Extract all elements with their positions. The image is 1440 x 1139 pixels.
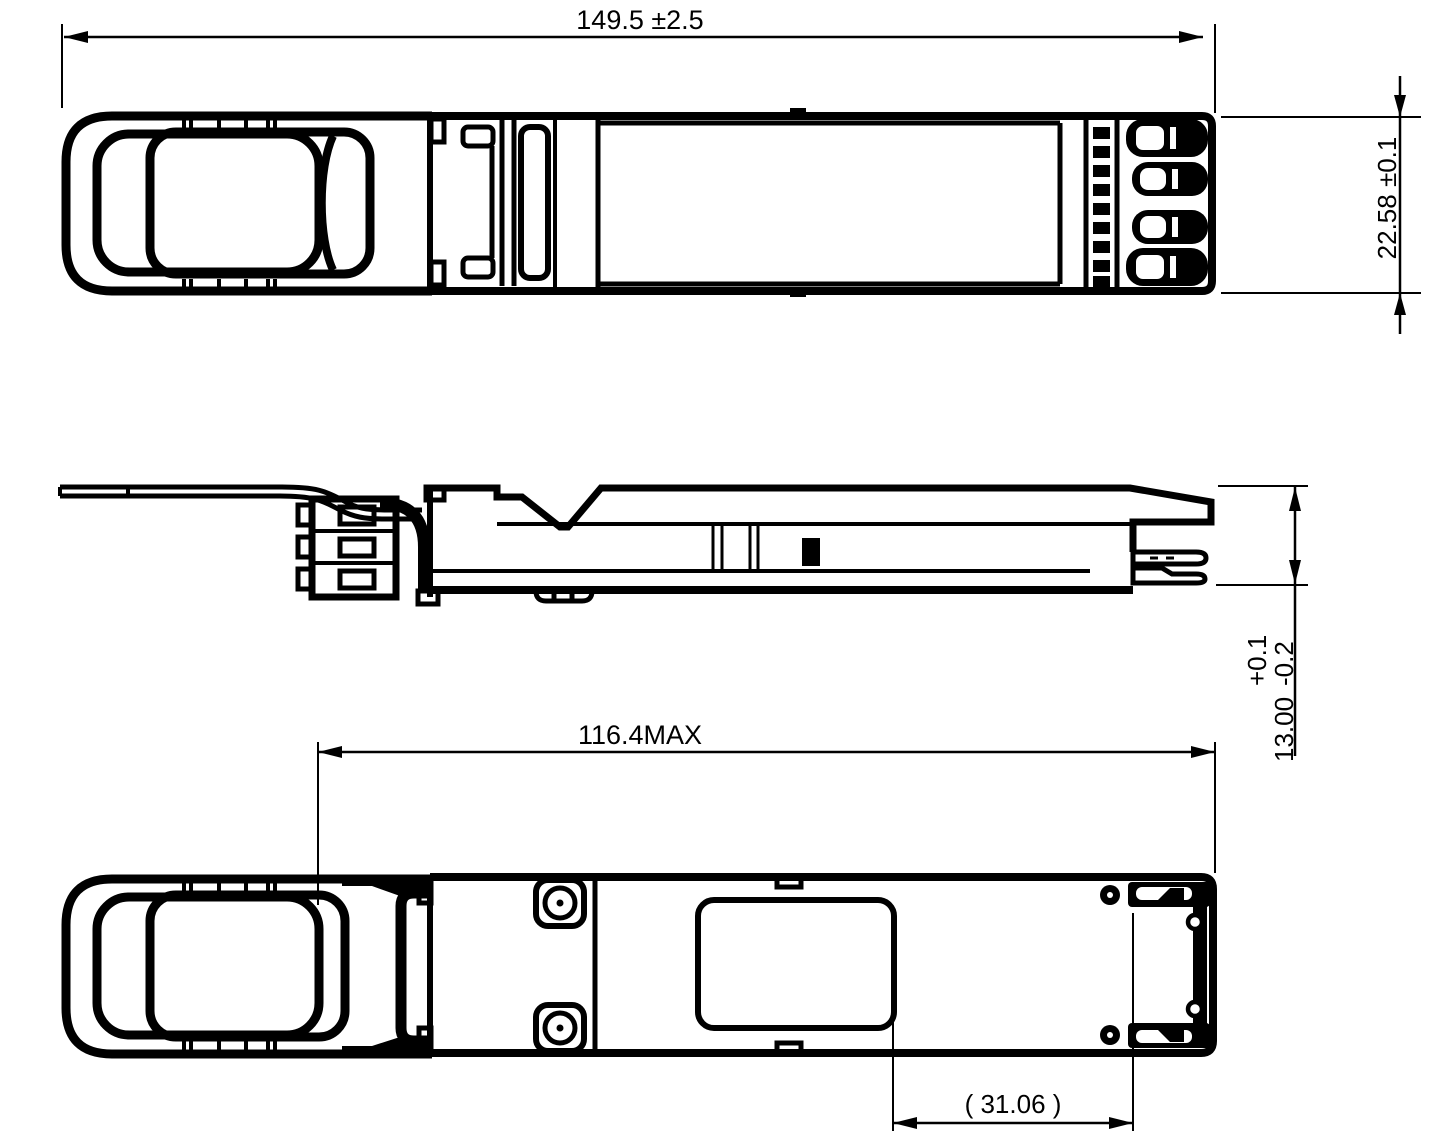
arrowhead-right (1179, 31, 1203, 43)
side-view (60, 486, 1211, 604)
dimension-text-overall-length: 149.5 ±2.5 (576, 5, 703, 35)
arrowhead-top (1289, 487, 1301, 511)
label-recess (698, 900, 894, 1028)
grip-block (150, 132, 370, 274)
top-view (66, 108, 1212, 297)
pivot-bracket (380, 503, 424, 590)
thickness-tolerance-upper: +0.1 (1242, 635, 1272, 686)
guide-pin-top (1188, 915, 1202, 929)
transceiver-outline-drawing: 149.5 ±2.5 22.58 ±0.1 116.4MAX 13.00 +0.… (0, 0, 1440, 1139)
arrowhead-bottom (1289, 560, 1301, 584)
rear-guide-bores (1126, 119, 1208, 286)
arrowhead-left (318, 746, 342, 758)
bottom-boss (802, 538, 820, 566)
dimension-text-body-height: 22.58 ±0.1 (1372, 137, 1402, 260)
clip-slot-top (777, 877, 801, 887)
screw-boss-bottom (536, 1005, 584, 1051)
dimension-reference-offset: ( 31.06 ) (893, 913, 1133, 1131)
screw-boss-top (536, 880, 584, 926)
screw-hole-top (1100, 885, 1120, 905)
arrowhead-bottom (1394, 293, 1406, 315)
arrowhead-top (1394, 95, 1406, 117)
guide-pin-bottom (1188, 1002, 1202, 1016)
dimension-overall-length: 149.5 ±2.5 (62, 5, 1215, 113)
dimension-body-height: 22.58 ±0.1 (1221, 76, 1421, 334)
grip-concave-face (322, 136, 333, 270)
latch-collar (431, 116, 555, 291)
bail-inner-opening (97, 897, 319, 1035)
arrowhead-left (893, 1117, 917, 1129)
bail-outer-loop (66, 879, 432, 1054)
thickness-value: 13.00 (1269, 697, 1299, 762)
thickness-tolerance-lower: -0.2 (1269, 641, 1299, 686)
shield-clip-top (790, 108, 806, 115)
screw-hole-bottom (1100, 1025, 1120, 1045)
contact-ladder (1086, 120, 1117, 288)
pull-tab (60, 487, 422, 519)
dimension-thickness: 13.00 +0.1 -0.2 (1216, 486, 1308, 762)
bottom-view (66, 876, 1213, 1055)
arrowhead-right (1191, 746, 1215, 758)
rear-channel (1128, 882, 1210, 1048)
shield-clip-bottom (790, 290, 806, 297)
mechanical-drawing-canvas: 149.5 ±2.5 22.58 ±0.1 116.4MAX 13.00 +0.… (0, 0, 1440, 1139)
dimension-text-reference-offset: ( 31.06 ) (965, 1089, 1062, 1119)
arrowhead-right (1109, 1117, 1133, 1129)
dimension-text-thickness: 13.00 +0.1 -0.2 (1242, 635, 1299, 762)
bail-inner-opening (97, 134, 319, 272)
card-edge (1133, 552, 1206, 583)
bail-outer-loop (66, 116, 432, 291)
latch-slot (521, 127, 548, 278)
inner-frame (598, 118, 1060, 289)
clip-slot-bottom (777, 1043, 801, 1053)
dimension-text-housing-length: 116.4MAX (578, 720, 702, 750)
arrowhead-left (64, 31, 88, 43)
body-profile (430, 486, 1211, 601)
